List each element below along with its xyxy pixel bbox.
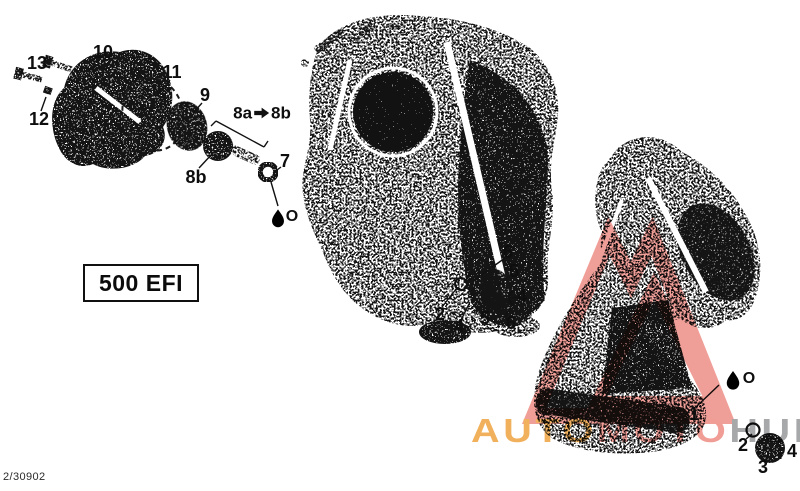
document-code: 2/30902 (3, 471, 46, 483)
parts-diagram-canvas: AUTOMOTOHUB 13 10 12 11 9 8b 7 8a 8b O O… (0, 0, 800, 491)
callout-10: 10 (93, 43, 113, 61)
callout-4-top: 4 (517, 287, 527, 305)
callout-4-right: 4 (787, 442, 797, 460)
callout-3: 3 (758, 458, 768, 476)
callout-5-top: 5 (509, 262, 519, 280)
sequence-from: 8a (233, 105, 252, 122)
callout-labels: 13 10 12 11 9 8b 7 8a 8b O O 6 5 4 2 4 5… (0, 0, 800, 491)
callout-sequence-8a-8b: 8a 8b (233, 105, 291, 122)
callout-1: 1 (689, 405, 699, 423)
callout-8b: 8b (185, 168, 206, 186)
callout-13: 13 (27, 54, 47, 72)
oil-note-right: O (743, 371, 755, 387)
model-label-box: 500 EFI (83, 264, 199, 302)
callout-4-bottom: 4 (454, 317, 464, 335)
callout-6-top: 6 (503, 243, 513, 261)
callout-2-mid: 2 (435, 305, 445, 323)
callout-6-bottom: 6 (506, 314, 516, 332)
callout-9: 9 (200, 86, 210, 104)
sequence-to: 8b (271, 105, 291, 122)
callout-12: 12 (29, 110, 49, 128)
oil-note-left: O (286, 209, 298, 225)
callout-7: 7 (280, 152, 290, 170)
callout-11: 11 (162, 63, 181, 81)
callout-2-right: 2 (738, 436, 748, 454)
arrow-right-icon (254, 108, 269, 119)
callout-5-bottom: 5 (480, 309, 490, 327)
